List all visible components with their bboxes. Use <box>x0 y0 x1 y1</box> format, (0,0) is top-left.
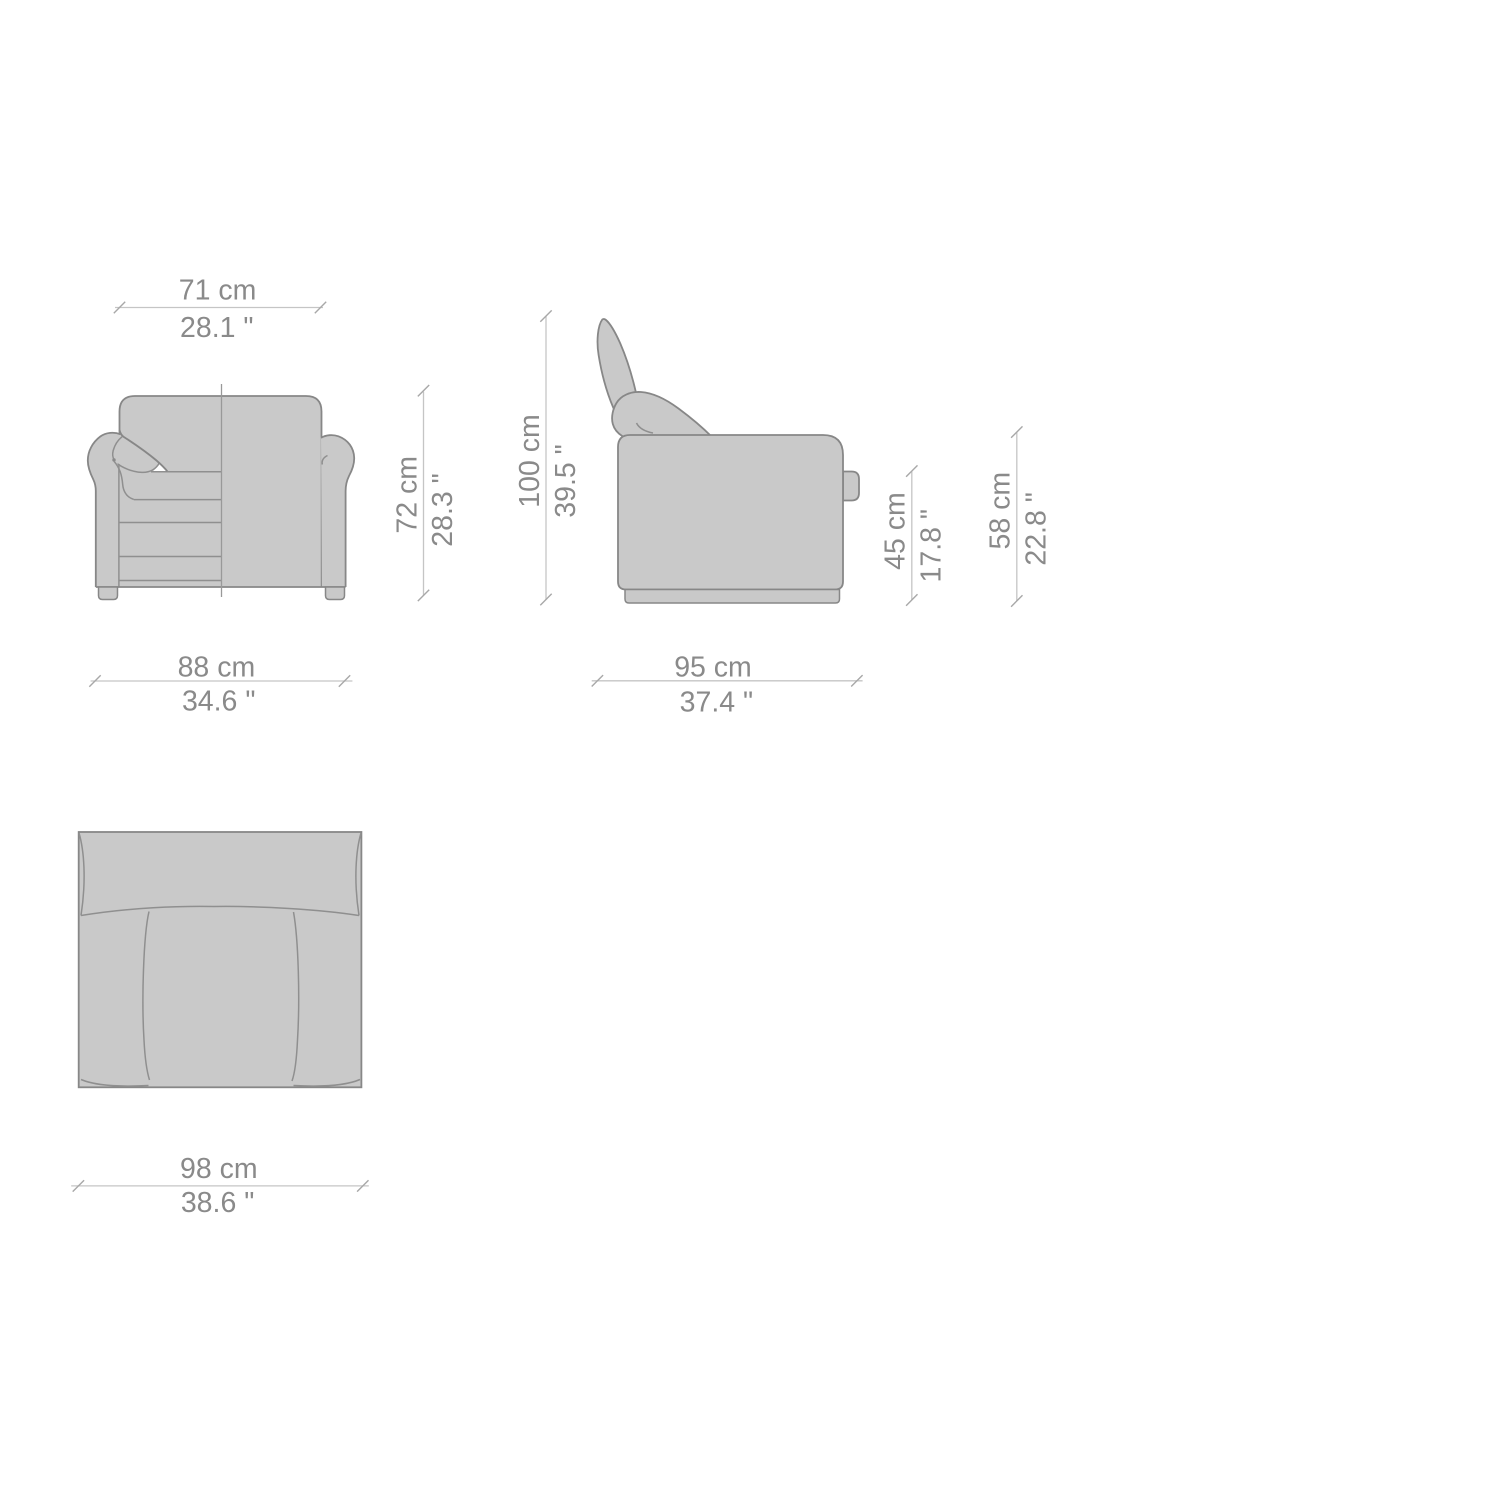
svg-text:28.1 ": 28.1 " <box>180 312 254 344</box>
svg-text:95 cm: 95 cm <box>674 651 752 683</box>
svg-text:72 cm: 72 cm <box>392 456 424 534</box>
svg-text:98 cm: 98 cm <box>180 1153 258 1185</box>
svg-text:88 cm: 88 cm <box>178 651 256 683</box>
svg-text:100 cm: 100 cm <box>514 414 546 507</box>
svg-text:34.6 ": 34.6 " <box>182 685 256 717</box>
svg-text:58 cm: 58 cm <box>985 472 1017 550</box>
svg-text:17.8 ": 17.8 " <box>916 509 948 583</box>
svg-text:39.5 ": 39.5 " <box>550 444 582 518</box>
svg-text:28.3 ": 28.3 " <box>427 473 459 547</box>
svg-text:38.6 ": 38.6 " <box>181 1187 255 1219</box>
svg-text:37.4 ": 37.4 " <box>680 686 754 718</box>
svg-text:71 cm: 71 cm <box>179 275 257 307</box>
svg-text:45 cm: 45 cm <box>880 492 912 570</box>
svg-text:22.8 ": 22.8 " <box>1021 492 1053 566</box>
